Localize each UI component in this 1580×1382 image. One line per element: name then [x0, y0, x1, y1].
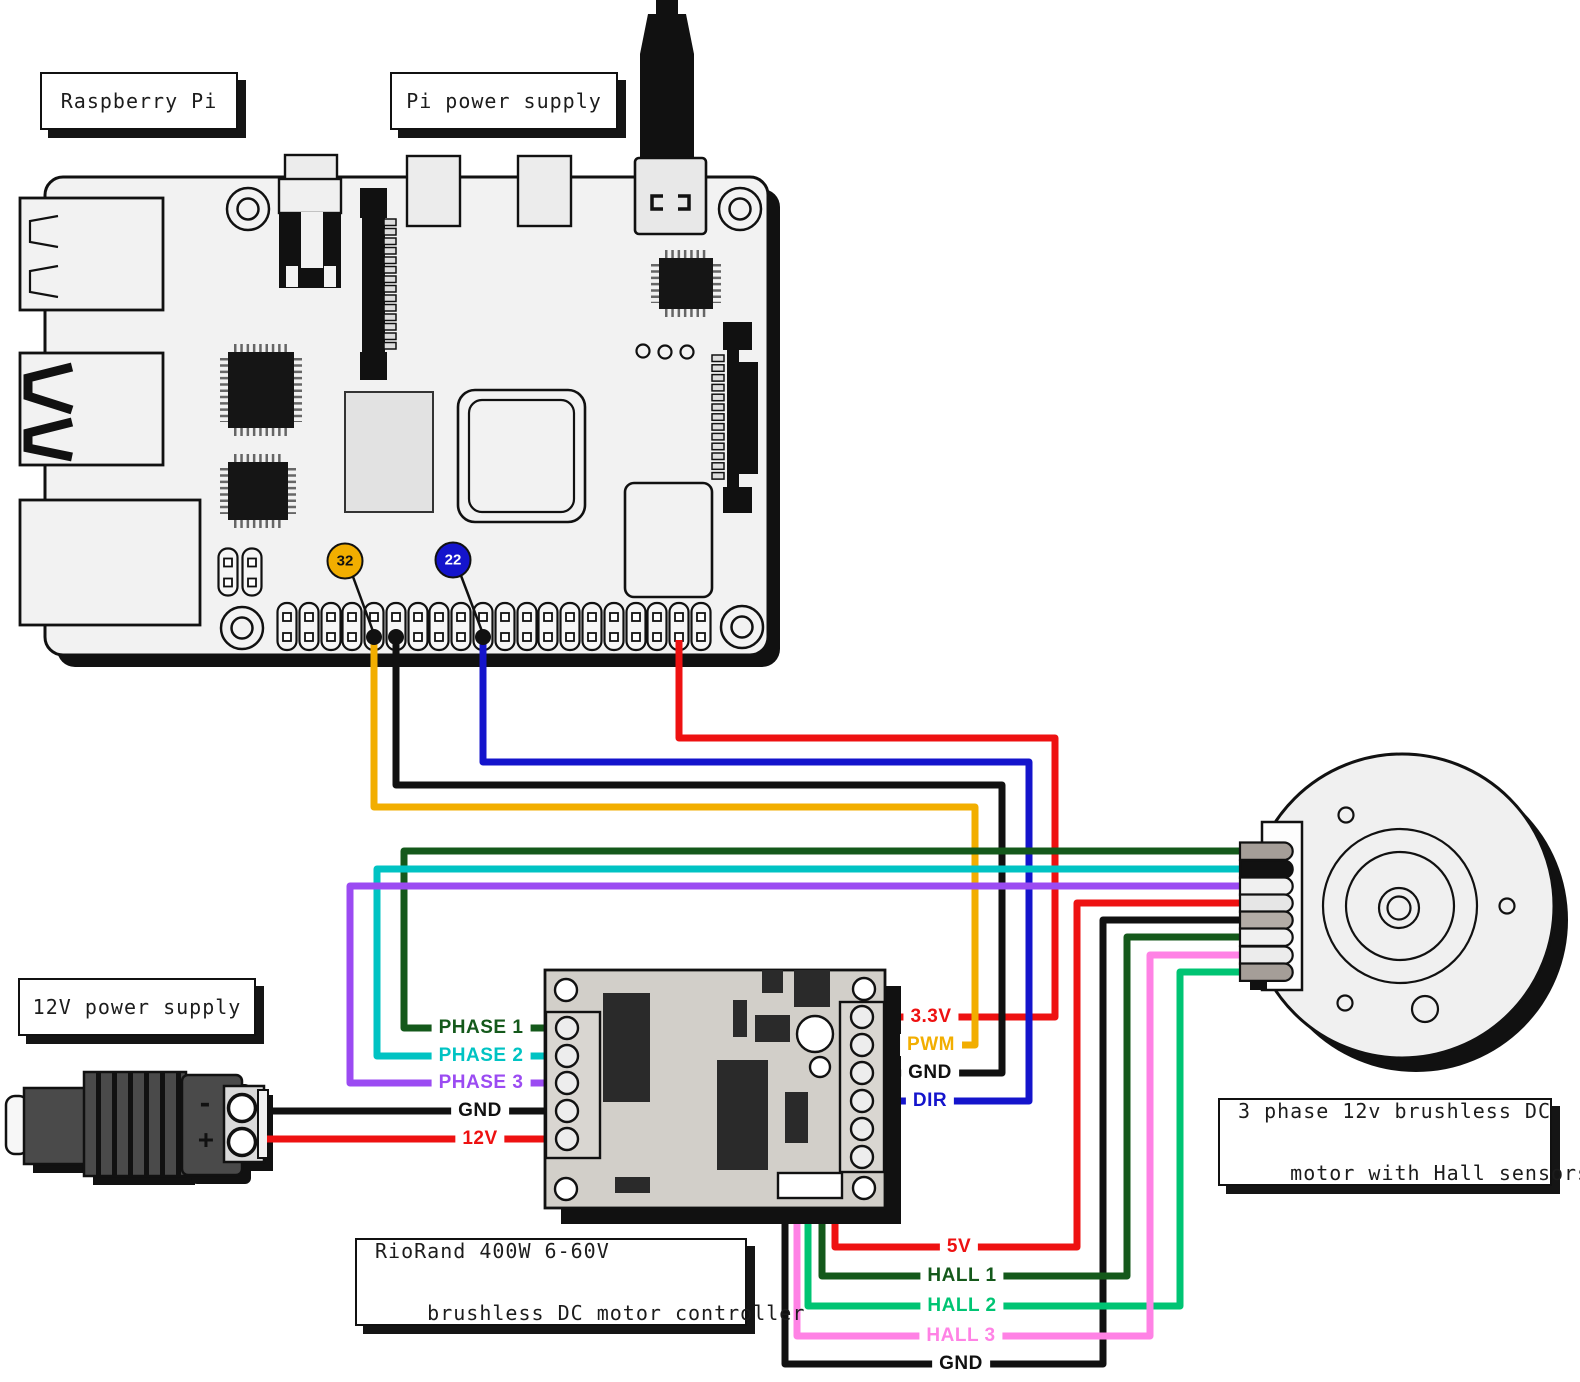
motor-label-line1: 3 phase 12v brushless DC — [1238, 1099, 1551, 1123]
hall3-wire-label: HALL 3 — [919, 1325, 1002, 1347]
controller-label-line2: brushless DC motor controller — [427, 1301, 805, 1325]
pi-power-supply-label: Pi power supply — [406, 86, 602, 117]
hall1-wire-label: HALL 1 — [920, 1265, 1003, 1287]
5v-wire-label: 5V — [940, 1236, 978, 1258]
usb-pad-area — [625, 483, 712, 597]
pin-dot-22 — [475, 629, 491, 645]
gpio-badge-32: 32 — [327, 543, 364, 580]
ethernet-port — [20, 500, 200, 625]
usb-port-bottom — [20, 353, 163, 465]
chip-qfp-2 — [224, 458, 292, 524]
power-cable — [640, 0, 694, 162]
raspberry-pi-label-box: Raspberry Pi — [40, 72, 238, 130]
gnd-right-wire-label: GND — [901, 1062, 959, 1084]
gnd-left-wire-label: GND — [451, 1100, 509, 1122]
controller-label-line1: RioRand 400W 6-60V — [375, 1239, 610, 1263]
terminal-strip — [258, 1090, 268, 1158]
phase1-wire-label: PHASE 1 — [432, 1017, 531, 1039]
twelve-v-power-supply-label: 12V power supply — [33, 992, 242, 1023]
test-pads — [637, 345, 694, 359]
wifi-chip — [655, 254, 717, 313]
3v3-wire-label: 3.3V — [903, 1006, 958, 1028]
twelve-v-power-supply-label-box: 12V power supply — [18, 978, 256, 1036]
pin-dot-32 — [366, 629, 382, 645]
motor-connector-lugs — [1240, 843, 1293, 981]
motor-controller-board — [545, 970, 901, 1224]
mounting-hole — [227, 188, 269, 230]
terminal-block-right — [840, 1002, 884, 1172]
phase2-wire-label: PHASE 2 — [432, 1045, 531, 1067]
terminal-negative-sign: - — [197, 1089, 213, 1119]
terminal-negative-screw — [229, 1095, 256, 1122]
pwm-wire-label: PWM — [900, 1034, 962, 1056]
terminal-block-left — [546, 1012, 600, 1158]
capacitor-small — [810, 1057, 830, 1077]
dir-wire-label: DIR — [906, 1090, 954, 1112]
hdmi-port-1 — [518, 156, 571, 226]
hdmi-port-0 — [407, 156, 460, 226]
terminal-positive-screw — [229, 1129, 256, 1156]
metal-shield — [458, 390, 585, 522]
soc-chip — [345, 392, 433, 512]
wiring-diagram: Raspberry Pi Pi power supply 12V power s… — [0, 0, 1580, 1382]
barrel-body — [24, 1088, 86, 1164]
chip-qfp-1 — [224, 348, 298, 432]
usb-port-top — [20, 198, 163, 310]
controller-label-box: RioRand 400W 6-60V brushless DC motor co… — [355, 1238, 747, 1326]
usb-c-power-connector — [635, 158, 706, 234]
capacitor-large — [797, 1016, 833, 1052]
hall-connector — [778, 1173, 842, 1198]
raspberry-pi-label: Raspberry Pi — [61, 86, 218, 117]
gpio-badge-22: 22 — [435, 542, 472, 579]
gnd-bottom-wire-label: GND — [932, 1353, 990, 1375]
audio-jack — [279, 155, 341, 288]
twelve-v-power-supply — [6, 1072, 273, 1185]
terminal-positive-sign: + — [198, 1125, 214, 1155]
pi-power-supply-label-box: Pi power supply — [390, 72, 618, 130]
12v-wire-label: 12V — [455, 1128, 504, 1150]
motor-label-line2: motor with Hall sensors — [1290, 1161, 1580, 1185]
pin-dot-gnd — [388, 629, 404, 645]
motor-label-box: 3 phase 12v brushless DC motor with Hall… — [1218, 1098, 1552, 1186]
mounting-hole — [721, 606, 763, 648]
hall2-wire-label: HALL 2 — [920, 1295, 1003, 1317]
motor-connector — [1240, 822, 1302, 990]
mounting-hole — [719, 188, 761, 230]
phase3-wire-label: PHASE 3 — [432, 1072, 531, 1094]
mounting-hole — [221, 607, 263, 649]
